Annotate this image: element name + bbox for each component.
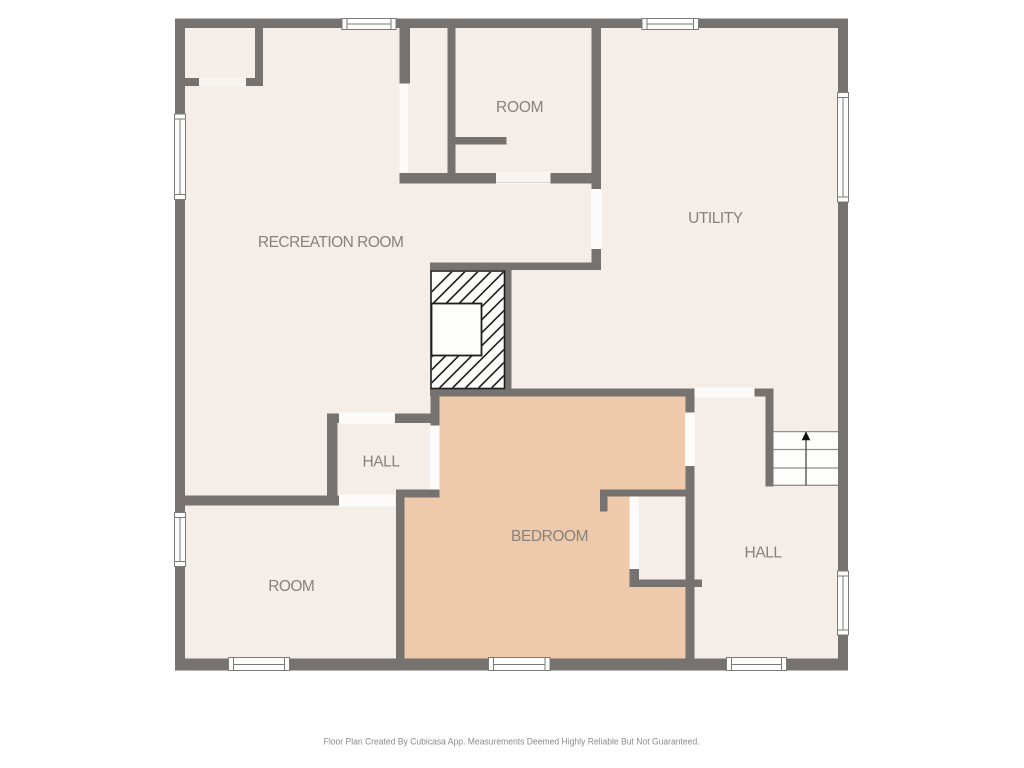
svg-text:Floor Plan Created By Cubicasa: Floor Plan Created By Cubicasa App. Meas… (324, 737, 700, 747)
svg-text:UTILITY: UTILITY (688, 210, 743, 227)
svg-text:RECREATION ROOM: RECREATION ROOM (258, 234, 404, 251)
svg-text:HALL: HALL (745, 545, 783, 562)
svg-text:BEDROOM: BEDROOM (511, 528, 589, 545)
svg-text:ROOM: ROOM (268, 578, 315, 595)
svg-text:HALL: HALL (362, 453, 400, 470)
svg-text:ROOM: ROOM (496, 99, 544, 116)
